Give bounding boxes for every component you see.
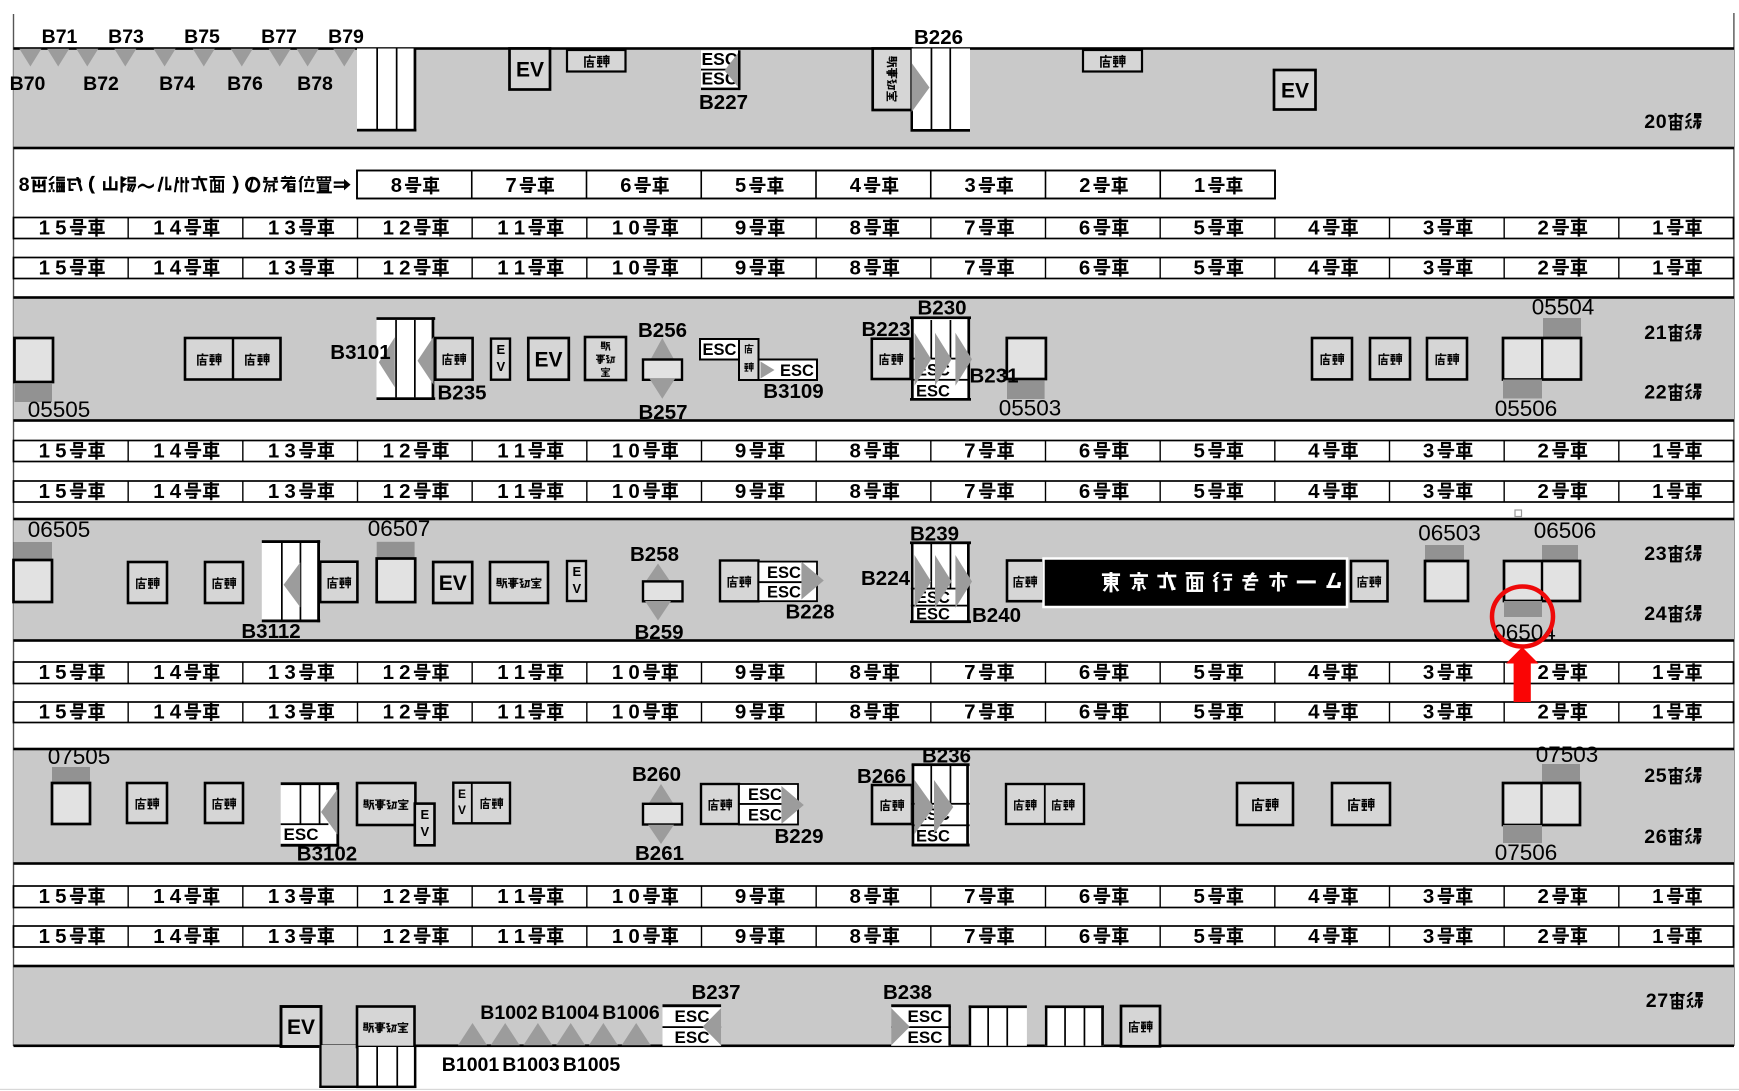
- svg-text:B238: B238: [883, 981, 932, 1004]
- svg-text:6: 6: [1079, 701, 1090, 724]
- svg-text:1: 1: [1652, 661, 1663, 684]
- svg-text:5: 5: [1193, 439, 1204, 462]
- svg-text:E: E: [572, 564, 581, 579]
- svg-text:ESC: ESC: [908, 1007, 943, 1026]
- svg-text:5: 5: [1193, 256, 1204, 279]
- svg-text:1: 1: [497, 925, 508, 948]
- svg-text:B259: B259: [634, 621, 683, 644]
- svg-text:8: 8: [849, 925, 860, 948]
- svg-text:EV: EV: [439, 572, 467, 595]
- svg-text:2: 2: [1644, 765, 1655, 787]
- svg-text:6: 6: [1079, 480, 1090, 503]
- svg-text:1: 1: [383, 885, 394, 908]
- svg-text:6: 6: [1079, 439, 1090, 462]
- svg-text:B78: B78: [297, 73, 333, 95]
- svg-text:1: 1: [514, 256, 525, 279]
- svg-text:ESC: ESC: [748, 786, 782, 804]
- svg-text:E: E: [496, 342, 505, 357]
- svg-text:9: 9: [735, 256, 746, 279]
- svg-text:5: 5: [55, 439, 66, 462]
- svg-text:8: 8: [849, 701, 860, 724]
- svg-text:1: 1: [514, 439, 525, 462]
- svg-text:1: 1: [153, 439, 164, 462]
- svg-text:3: 3: [1423, 439, 1434, 462]
- svg-text:B240: B240: [972, 604, 1021, 627]
- svg-text:B226: B226: [914, 26, 963, 49]
- svg-text:05504: 05504: [1532, 295, 1595, 320]
- svg-text:2: 2: [399, 925, 410, 948]
- svg-text:ESC: ESC: [767, 584, 801, 602]
- svg-text:B74: B74: [159, 73, 195, 95]
- svg-text:ESC: ESC: [780, 362, 814, 380]
- svg-text:1: 1: [1652, 701, 1663, 724]
- svg-text:1: 1: [1652, 925, 1663, 948]
- svg-text:ESC: ESC: [748, 807, 782, 825]
- svg-text:B77: B77: [261, 26, 297, 48]
- svg-text:4: 4: [1308, 661, 1320, 684]
- svg-text:2: 2: [399, 216, 410, 239]
- svg-text:1: 1: [268, 256, 279, 279]
- svg-text:4: 4: [170, 925, 182, 948]
- svg-text:8: 8: [849, 661, 860, 684]
- svg-text:5: 5: [55, 701, 66, 724]
- svg-text:B1005: B1005: [563, 1054, 621, 1076]
- svg-text:1: 1: [1652, 256, 1663, 279]
- svg-text:V: V: [458, 803, 466, 817]
- svg-text:8: 8: [19, 174, 30, 196]
- svg-text:5: 5: [1656, 765, 1667, 787]
- svg-text:4: 4: [170, 885, 182, 908]
- svg-text:9: 9: [735, 216, 746, 239]
- svg-text:1: 1: [514, 480, 525, 503]
- svg-text:E: E: [458, 787, 466, 801]
- svg-text:4: 4: [170, 661, 182, 684]
- svg-text:V: V: [496, 359, 505, 374]
- svg-text:3: 3: [284, 480, 295, 503]
- svg-text:1: 1: [497, 885, 508, 908]
- svg-text:8: 8: [391, 175, 402, 197]
- svg-text:06506: 06506: [1534, 518, 1597, 543]
- svg-text:1: 1: [514, 925, 525, 948]
- svg-text:1: 1: [497, 480, 508, 503]
- svg-text:2: 2: [1079, 175, 1090, 197]
- svg-text:1: 1: [612, 885, 623, 908]
- svg-text:E: E: [420, 807, 429, 822]
- svg-text:5: 5: [55, 480, 66, 503]
- svg-text:5: 5: [1193, 661, 1204, 684]
- svg-text:9: 9: [735, 925, 746, 948]
- svg-text:1: 1: [497, 701, 508, 724]
- svg-text:6: 6: [1079, 256, 1090, 279]
- svg-text:B71: B71: [42, 26, 78, 48]
- svg-text:B229: B229: [774, 825, 823, 848]
- svg-text:7: 7: [506, 175, 517, 197]
- svg-text:1: 1: [383, 480, 394, 503]
- svg-text:07505: 07505: [48, 744, 111, 769]
- svg-text:ESC: ESC: [675, 1028, 710, 1047]
- svg-text:ESC: ESC: [916, 606, 950, 624]
- svg-text:1: 1: [153, 480, 164, 503]
- svg-text:2: 2: [399, 885, 410, 908]
- svg-text:1: 1: [268, 925, 279, 948]
- svg-text:5: 5: [55, 925, 66, 948]
- svg-text:1: 1: [153, 216, 164, 239]
- svg-text:1: 1: [612, 216, 623, 239]
- svg-text:1: 1: [1652, 480, 1663, 503]
- svg-text:B3112: B3112: [241, 620, 300, 643]
- svg-text:B79: B79: [328, 26, 364, 48]
- svg-text:06505: 06505: [28, 517, 91, 542]
- svg-text:7: 7: [1657, 990, 1668, 1012]
- svg-text:3: 3: [1423, 701, 1434, 724]
- svg-text:EV: EV: [516, 59, 544, 82]
- svg-text:6: 6: [1079, 661, 1090, 684]
- svg-text:06503: 06503: [1418, 521, 1481, 546]
- svg-text:1: 1: [612, 701, 623, 724]
- svg-text:ESC: ESC: [767, 564, 801, 582]
- svg-text:B70: B70: [10, 73, 46, 95]
- svg-text:5: 5: [1193, 885, 1204, 908]
- svg-text:B235: B235: [437, 382, 486, 405]
- svg-text:1: 1: [39, 439, 50, 462]
- svg-text:4: 4: [1308, 925, 1320, 948]
- svg-text:3: 3: [284, 256, 295, 279]
- svg-text:4: 4: [1308, 256, 1320, 279]
- svg-text:1: 1: [514, 701, 525, 724]
- svg-text:6: 6: [1079, 925, 1090, 948]
- svg-text:1: 1: [39, 885, 50, 908]
- svg-text:1: 1: [153, 885, 164, 908]
- svg-text:B260: B260: [632, 763, 681, 786]
- svg-text:1: 1: [612, 439, 623, 462]
- svg-text:3: 3: [1423, 885, 1434, 908]
- svg-text:5: 5: [55, 256, 66, 279]
- svg-text:B3102: B3102: [297, 843, 357, 866]
- svg-text:7: 7: [964, 256, 975, 279]
- svg-text:5: 5: [55, 661, 66, 684]
- svg-text:0: 0: [1656, 111, 1667, 133]
- svg-text:1: 1: [1656, 322, 1667, 344]
- svg-text:1: 1: [268, 885, 279, 908]
- svg-text:4: 4: [850, 175, 862, 197]
- svg-text:9: 9: [735, 661, 746, 684]
- svg-text:ESC: ESC: [916, 383, 950, 401]
- svg-text:1: 1: [1652, 439, 1663, 462]
- svg-text:4: 4: [170, 701, 182, 724]
- svg-text:1: 1: [497, 216, 508, 239]
- svg-text:2: 2: [1537, 216, 1548, 239]
- svg-text:1: 1: [383, 439, 394, 462]
- svg-text:0: 0: [628, 885, 639, 908]
- svg-text:1: 1: [383, 701, 394, 724]
- svg-text:3: 3: [284, 885, 295, 908]
- svg-text:1: 1: [612, 925, 623, 948]
- svg-text:3: 3: [284, 661, 295, 684]
- svg-text:7: 7: [964, 885, 975, 908]
- svg-text:1: 1: [612, 256, 623, 279]
- svg-text:4: 4: [1308, 439, 1320, 462]
- svg-text:5: 5: [55, 885, 66, 908]
- svg-text:1: 1: [39, 661, 50, 684]
- svg-text:0: 0: [628, 925, 639, 948]
- svg-text:ESC: ESC: [675, 1007, 710, 1026]
- svg-text:5: 5: [1193, 925, 1204, 948]
- svg-text:1: 1: [268, 216, 279, 239]
- svg-text:B231: B231: [969, 365, 1018, 388]
- svg-text:B258: B258: [630, 543, 679, 566]
- svg-text:0: 0: [628, 216, 639, 239]
- svg-text:8: 8: [849, 216, 860, 239]
- svg-text:B228: B228: [785, 601, 834, 624]
- svg-text:07503: 07503: [1536, 742, 1599, 767]
- svg-text:B1006: B1006: [602, 1002, 660, 1024]
- svg-text:6: 6: [1079, 216, 1090, 239]
- svg-text:1: 1: [153, 256, 164, 279]
- svg-text:1: 1: [268, 439, 279, 462]
- svg-text:B73: B73: [108, 26, 144, 48]
- svg-text:1: 1: [268, 480, 279, 503]
- svg-text:7: 7: [964, 216, 975, 239]
- svg-text:1: 1: [383, 925, 394, 948]
- svg-text:4: 4: [1308, 885, 1320, 908]
- svg-text:B1001: B1001: [442, 1054, 500, 1076]
- svg-text:B1004: B1004: [541, 1002, 599, 1024]
- svg-text:2: 2: [1537, 439, 1548, 462]
- svg-text:1: 1: [383, 216, 394, 239]
- svg-text:2: 2: [1537, 925, 1548, 948]
- svg-text:9: 9: [735, 701, 746, 724]
- svg-text:05506: 05506: [1495, 396, 1558, 421]
- svg-text:1: 1: [612, 480, 623, 503]
- svg-text:B1002: B1002: [480, 1002, 538, 1024]
- svg-text:1: 1: [383, 661, 394, 684]
- svg-text:B257: B257: [638, 401, 687, 424]
- svg-text:V: V: [420, 824, 429, 839]
- svg-text:2: 2: [1644, 382, 1655, 404]
- svg-text:1: 1: [153, 661, 164, 684]
- svg-text:1: 1: [497, 256, 508, 279]
- svg-text:9: 9: [735, 439, 746, 462]
- svg-text:2: 2: [399, 256, 410, 279]
- svg-text:1: 1: [39, 256, 50, 279]
- svg-text:2: 2: [399, 439, 410, 462]
- svg-text:5: 5: [1193, 480, 1204, 503]
- svg-text:B261: B261: [635, 842, 684, 865]
- svg-text:B224: B224: [861, 567, 911, 590]
- svg-text:EV: EV: [287, 1016, 315, 1039]
- svg-text:2: 2: [1537, 480, 1548, 503]
- svg-text:5: 5: [735, 175, 746, 197]
- svg-text:2: 2: [1537, 256, 1548, 279]
- svg-text:B75: B75: [184, 26, 220, 48]
- svg-text:2: 2: [1644, 543, 1655, 565]
- svg-text:8: 8: [849, 885, 860, 908]
- svg-text:3: 3: [1423, 480, 1434, 503]
- svg-text:1: 1: [39, 216, 50, 239]
- svg-text:3: 3: [284, 701, 295, 724]
- svg-text:1: 1: [514, 885, 525, 908]
- svg-text:0: 0: [628, 480, 639, 503]
- svg-text:9: 9: [735, 885, 746, 908]
- svg-text:1: 1: [268, 701, 279, 724]
- svg-text:2: 2: [1644, 322, 1655, 344]
- svg-text:3: 3: [1423, 216, 1434, 239]
- svg-text:06507: 06507: [368, 516, 431, 541]
- svg-text:1: 1: [1194, 175, 1205, 197]
- svg-text:1: 1: [39, 480, 50, 503]
- svg-text:6: 6: [620, 175, 631, 197]
- svg-text:2: 2: [399, 661, 410, 684]
- svg-text:3: 3: [284, 439, 295, 462]
- svg-text:4: 4: [170, 216, 182, 239]
- svg-text:3: 3: [1423, 661, 1434, 684]
- svg-text:4: 4: [170, 256, 182, 279]
- svg-text:1: 1: [153, 701, 164, 724]
- svg-text:ESC: ESC: [703, 341, 737, 359]
- svg-text:05505: 05505: [28, 397, 91, 422]
- svg-text:1: 1: [153, 925, 164, 948]
- svg-text:B237: B237: [691, 981, 740, 1004]
- svg-text:EV: EV: [1281, 80, 1309, 103]
- svg-text:5: 5: [1193, 216, 1204, 239]
- svg-text:4: 4: [170, 439, 182, 462]
- svg-text:6: 6: [1079, 885, 1090, 908]
- svg-text:2: 2: [399, 701, 410, 724]
- svg-text:4: 4: [1308, 216, 1320, 239]
- svg-text:1: 1: [383, 256, 394, 279]
- svg-text:3: 3: [1656, 543, 1667, 565]
- svg-text:07506: 07506: [1495, 840, 1558, 865]
- svg-text:1: 1: [612, 661, 623, 684]
- svg-text:ESC: ESC: [908, 1028, 943, 1047]
- svg-text:EV: EV: [534, 349, 562, 372]
- svg-text:3: 3: [284, 216, 295, 239]
- svg-text:V: V: [572, 581, 581, 596]
- svg-text:2: 2: [1537, 885, 1548, 908]
- svg-text:7: 7: [964, 925, 975, 948]
- svg-text:7: 7: [964, 439, 975, 462]
- svg-text:2: 2: [1644, 111, 1655, 133]
- svg-text:1: 1: [39, 701, 50, 724]
- svg-text:5: 5: [1193, 701, 1204, 724]
- svg-text:1: 1: [268, 661, 279, 684]
- svg-text:7: 7: [964, 701, 975, 724]
- svg-text:B1003: B1003: [502, 1054, 560, 1076]
- svg-text:B230: B230: [917, 297, 966, 320]
- svg-text:3: 3: [1423, 256, 1434, 279]
- svg-text:2: 2: [1537, 701, 1548, 724]
- svg-text:6: 6: [1656, 826, 1667, 848]
- svg-text:4: 4: [1308, 701, 1320, 724]
- svg-text:ESC: ESC: [284, 825, 319, 844]
- svg-text:8: 8: [849, 439, 860, 462]
- svg-text:0: 0: [628, 701, 639, 724]
- svg-text:1: 1: [497, 439, 508, 462]
- svg-text:2: 2: [1644, 603, 1655, 625]
- svg-text:4: 4: [1308, 480, 1320, 503]
- svg-text:B3101: B3101: [330, 341, 390, 364]
- svg-text:0: 0: [628, 661, 639, 684]
- svg-text:1: 1: [497, 661, 508, 684]
- svg-text:B227: B227: [699, 91, 748, 114]
- svg-text:ESC: ESC: [916, 828, 950, 846]
- svg-text:2: 2: [1656, 382, 1667, 404]
- svg-text:3: 3: [1423, 925, 1434, 948]
- svg-text:2: 2: [1537, 661, 1548, 684]
- svg-text:B76: B76: [227, 73, 263, 95]
- svg-text:4: 4: [170, 480, 182, 503]
- svg-text:3: 3: [965, 175, 976, 197]
- svg-text:2: 2: [1644, 826, 1655, 848]
- svg-text:0: 0: [628, 256, 639, 279]
- svg-text:7: 7: [964, 661, 975, 684]
- svg-text:0: 0: [628, 439, 639, 462]
- svg-text:B3109: B3109: [763, 380, 823, 403]
- svg-text:3: 3: [284, 925, 295, 948]
- svg-text:1: 1: [514, 661, 525, 684]
- svg-text:2: 2: [399, 480, 410, 503]
- svg-text:7: 7: [964, 480, 975, 503]
- svg-text:1: 1: [1652, 216, 1663, 239]
- svg-text:05503: 05503: [999, 396, 1062, 421]
- svg-text:4: 4: [1656, 603, 1667, 625]
- svg-text:B72: B72: [83, 73, 119, 95]
- svg-text:1: 1: [514, 216, 525, 239]
- svg-text:1: 1: [39, 925, 50, 948]
- svg-text:8: 8: [849, 480, 860, 503]
- svg-text:9: 9: [735, 480, 746, 503]
- svg-text:5: 5: [55, 216, 66, 239]
- svg-text:1: 1: [1652, 885, 1663, 908]
- svg-text:2: 2: [1646, 990, 1657, 1012]
- svg-text:8: 8: [849, 256, 860, 279]
